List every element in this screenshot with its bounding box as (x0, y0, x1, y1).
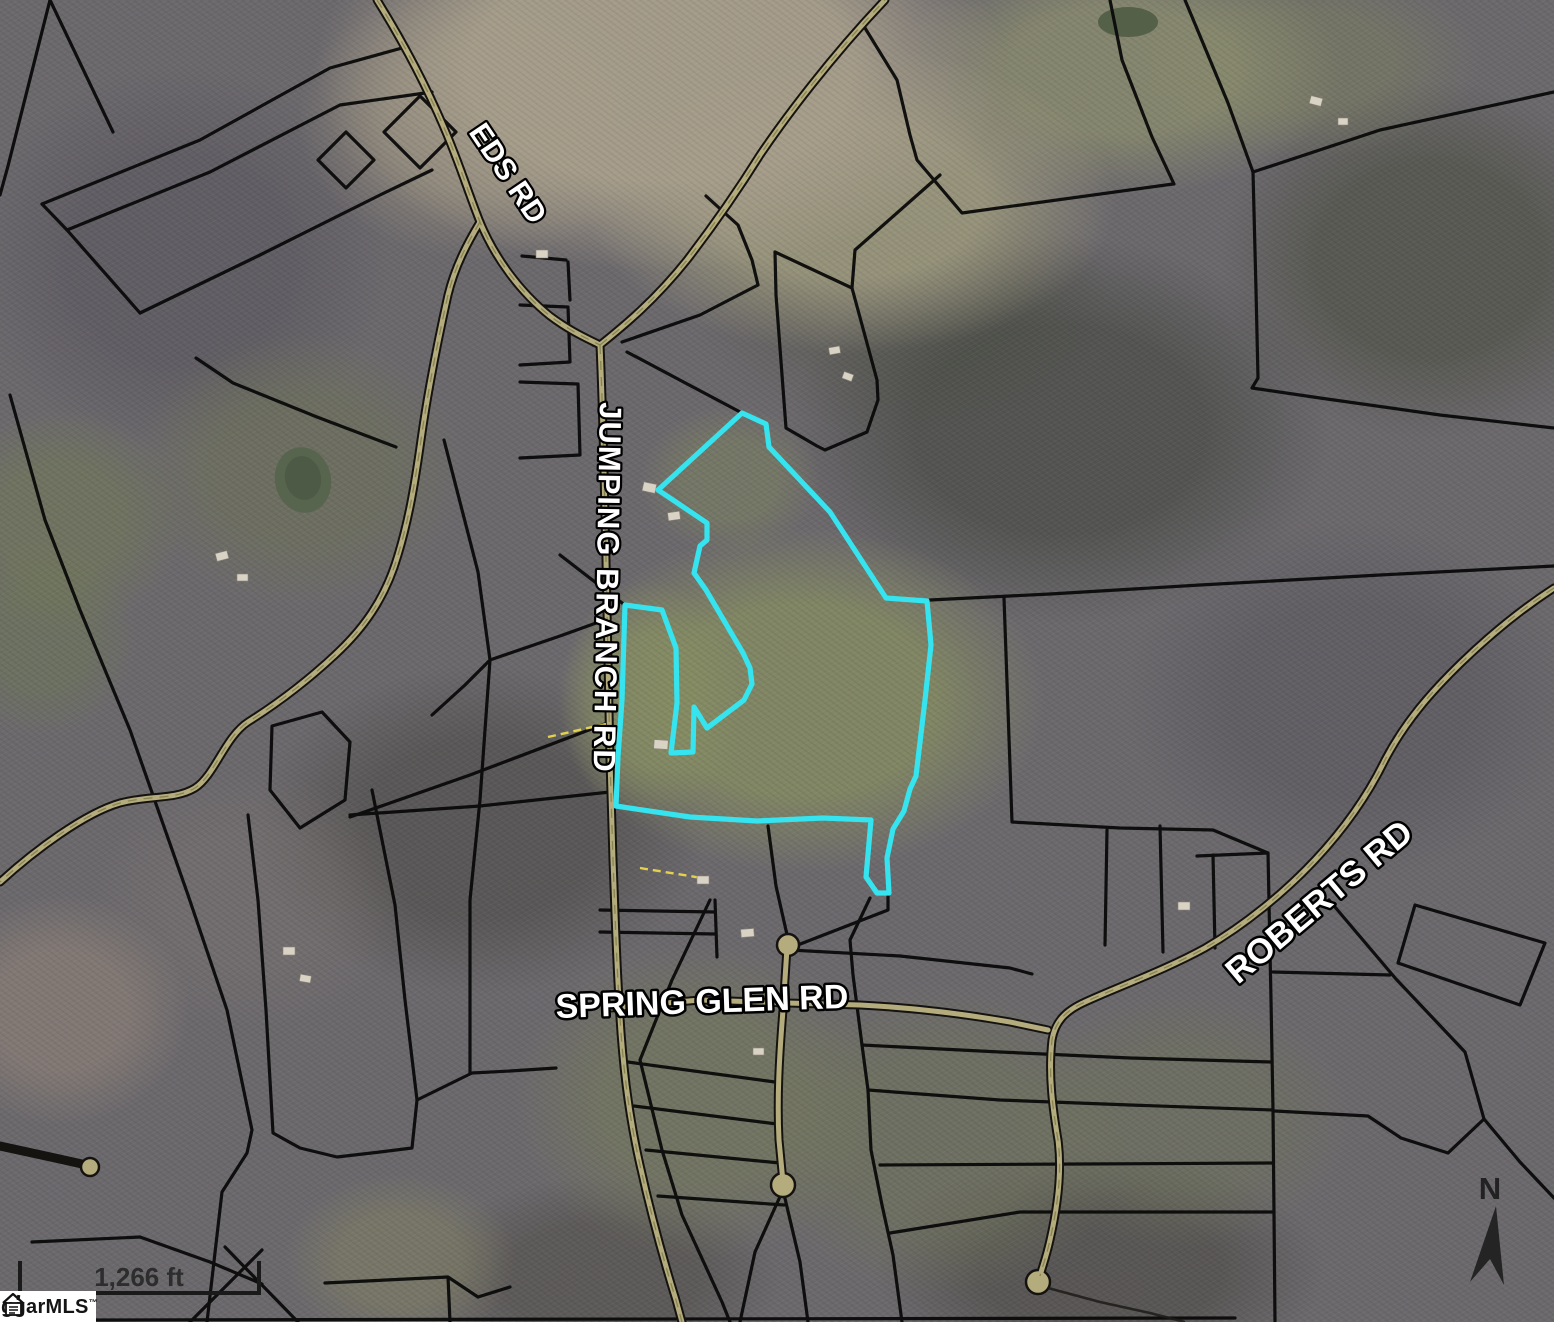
road-labels: EDS RD JUMPING BRANCH RD SPRING GLEN RD … (462, 117, 1420, 1026)
roads-layer (0, 0, 1554, 1322)
selected-parcel-outline[interactable] (616, 413, 931, 893)
house-icon (0, 1291, 27, 1318)
map-canvas[interactable]: EDS RD JUMPING BRANCH RD SPRING GLEN RD … (0, 0, 1554, 1322)
yellow-dash-lines (548, 724, 702, 878)
scale-bar-label: 1,266 ft (94, 1262, 184, 1292)
north-arrow-label: N (1479, 1171, 1501, 1206)
west-stub-bulb (81, 1158, 99, 1176)
north-arrow: N (1470, 1171, 1504, 1285)
north-arrow-icon (1470, 1206, 1504, 1285)
roberts-culdesac-bulb (1026, 1270, 1050, 1294)
road-label-spring-glen-rd: SPRING GLEN RD (555, 978, 849, 1026)
trademark-symbol: ™ (89, 1297, 98, 1307)
mls-logo: ggarMLS™ (0, 1291, 96, 1322)
road-label-roberts-rd: ROBERTS RD (1218, 813, 1420, 992)
